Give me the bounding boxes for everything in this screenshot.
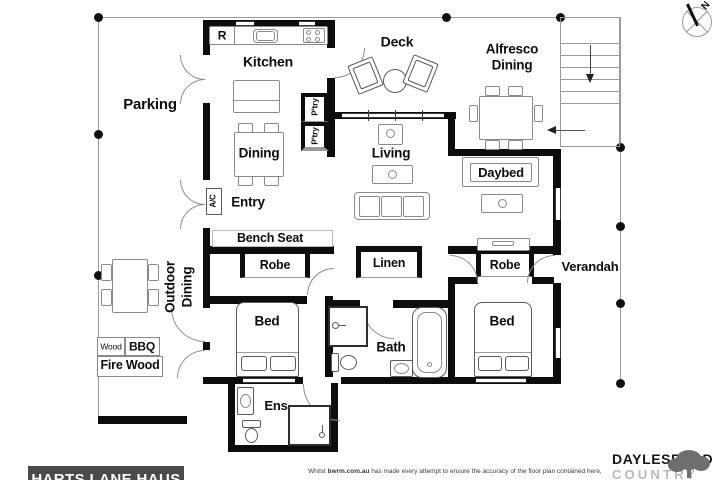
room-label-verandah: Verandah [562,260,619,274]
room-label-deck: Deck [381,34,414,49]
label-bbq: BBQ [129,340,155,353]
window-symbol [476,378,526,383]
boundary-post [616,379,625,388]
brand-tree-trunk [687,468,691,478]
label-wood: Wood [100,342,121,351]
alfresco-table [479,96,533,140]
outdoor-chair [101,289,112,306]
wall-segment [228,445,338,452]
sofa-seat [403,196,424,217]
stair-step [561,91,619,92]
boundary-post [442,13,451,22]
cooktop-burner [315,37,320,42]
linen-label: Linen [373,257,405,271]
sink-basin [256,31,275,41]
room-label-parking: Parking [123,97,177,114]
disclaimer-rest: has made every attempt to ensure the acc… [369,468,601,475]
label-fire-wood: Fire Wood [100,359,159,373]
window-symbol [555,328,561,358]
pillow [478,356,502,371]
toilet-tank [331,353,339,372]
fridge-label: R [218,29,226,42]
room-label-bench-seat: Bench Seat [237,232,303,246]
door-arc [180,79,205,104]
entry-arrow-line [556,130,585,131]
window-symbol [555,188,561,220]
room-label-alfresco-1: Alfresco [486,43,538,58]
disclaimer-site: bwrm.com.au [328,468,370,475]
side-table-dot [386,129,395,138]
door-arc [450,255,478,283]
room-label-entry: Entry [231,196,265,211]
outdoor-chair [101,264,112,281]
toilet-bowl [340,355,357,370]
room-label-bed-1: Bed [255,315,280,330]
tv-icon [492,241,514,246]
outdoor-chair [148,264,159,281]
room-label-bed-2: Bed [490,315,515,330]
window-tick [395,110,396,121]
disclaimer-text: Whilst bwrm.com.au has made every attemp… [308,468,602,475]
dining-chair [264,176,279,186]
outdoor-table [112,259,148,313]
door-arc [177,350,205,378]
outdoor-chair [148,289,159,306]
window-symbol [342,113,444,118]
boundary-line-right [620,17,621,383]
room-label-outdoor-2: Dining [181,267,196,308]
room-label-ens: Ens [264,399,287,413]
alfresco-chair [534,105,543,122]
pillow [241,356,267,371]
robe-label: Robe [490,259,520,273]
alfresco-chair [508,86,523,96]
ac-label: A/C [210,194,219,207]
door-opening [327,48,335,78]
daybed-label: Daybed [478,166,524,180]
toilet-bowl [245,428,258,443]
shower-head-icon [332,322,339,329]
room-label-alfresco-2: Dining [492,59,533,74]
stair-step [561,43,619,44]
door-arc [180,55,205,80]
door-arc [180,180,205,205]
window-symbol [243,378,295,383]
room-label-living: Living [372,147,411,162]
plan-title: HARTS LANE HAUS [31,471,180,480]
window-tick [422,110,423,121]
window-tick [368,110,369,121]
disclaimer-prefix: Whilst [308,468,328,475]
sofa-seat [359,196,380,217]
sofa-seat [381,196,402,217]
brand-tree-icon [668,458,686,472]
pillow [270,356,296,371]
stairs-down-arrowhead [586,74,594,83]
boundary-post [616,222,625,231]
room-label-bath: Bath [376,341,405,356]
basin-bowl [394,363,409,374]
boundary-post [616,299,625,308]
shower-head-icon [319,432,325,438]
shower [288,405,331,446]
room-label-dining: Dining [239,147,280,162]
robe-label: Robe [260,259,290,273]
alfresco-chair [508,140,523,150]
cooktop-burner [315,30,320,35]
door-arc [171,308,205,342]
wall-segment [228,383,235,452]
coffee-table-dot [388,170,397,179]
cooktop-burner [306,30,311,35]
alfresco-chair [485,86,500,96]
brand-tree-icon [692,456,710,471]
shower-arm [322,425,323,432]
stair-step [561,103,619,104]
pillow [505,356,529,371]
room-label-kitchen: Kitchen [243,54,293,69]
room-label-outdoor-1: Outdoor [164,261,179,313]
vanity-bowl [240,394,251,408]
wall-segment [210,246,334,254]
bed-foot-line [475,352,531,353]
plan-title-banner: HARTS LANE HAUS [28,466,184,480]
dining-chair [238,176,253,186]
alfresco-chair [485,140,500,150]
bathtub-drain [427,362,432,367]
kitchen-island [233,80,280,113]
wall-segment [98,416,187,424]
boundary-post [94,130,103,139]
shower-arm [339,325,346,326]
entry-arrowhead [547,126,556,134]
wall-segment [448,277,455,384]
coffee-table-dot [498,199,507,208]
door-arc [180,204,205,229]
door-arc [307,268,334,295]
floor-plan: N P'try P'try [0,0,720,480]
stairs-down-arrow [590,45,591,75]
alfresco-chair [469,105,478,122]
boundary-post [94,13,103,22]
wall-segment [448,149,561,156]
pantry-label: P'try [310,127,319,145]
boundary-line-top [98,17,620,18]
bed-foot-line [237,352,298,353]
pantry-label: P'try [310,98,319,116]
toilet-tank [242,420,261,428]
cooktop-burner [306,37,311,42]
kitchen-island-line [234,100,279,101]
